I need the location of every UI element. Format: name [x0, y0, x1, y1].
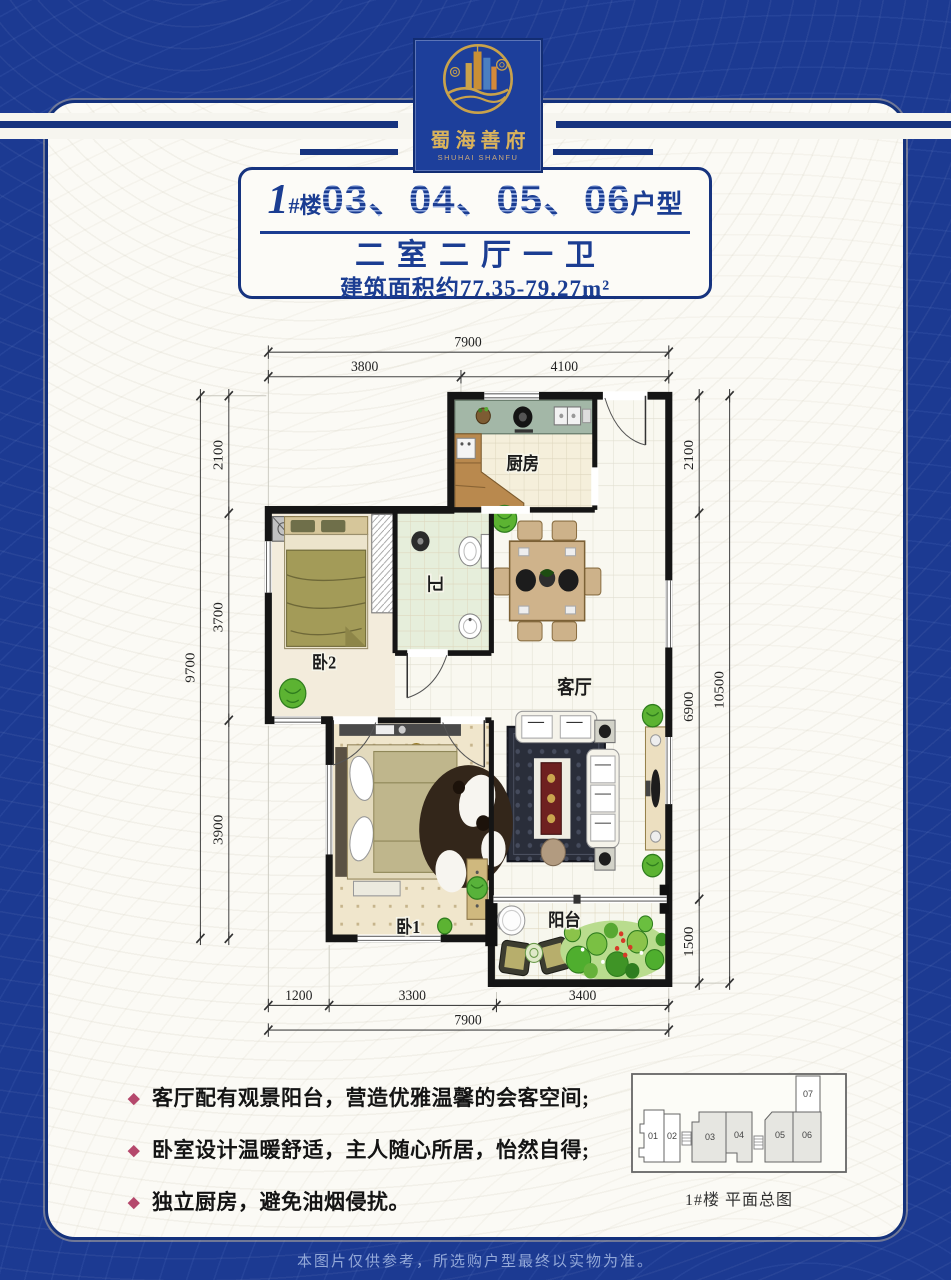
dim-bottom-b: 3300 — [399, 987, 426, 1004]
unit-label-03: 03 — [705, 1132, 715, 1142]
title-line1: 1#楼03、04、05、06户型 — [241, 178, 709, 231]
logo-name-en: SHUHAI SHANFU — [415, 153, 541, 162]
dim-left-c: 3900 — [211, 815, 226, 845]
unit-label-02: 02 — [667, 1131, 677, 1141]
unit-label-01: 01 — [648, 1131, 658, 1141]
dim-left-b: 3700 — [211, 602, 226, 632]
dim-right-c: 1500 — [682, 927, 697, 957]
logo-name-cn: 蜀海善府 — [415, 124, 541, 153]
layout-text: 二室二厅一卫 — [241, 238, 709, 274]
poster: { "colors": { "navy": "#16337f", "royal_… — [0, 0, 951, 1280]
feature-item: ◆卧室设计温暖舒适，主人随心所居，怡然自得; — [128, 1134, 648, 1164]
dim-top-total: 7900 — [454, 334, 481, 351]
floorplan: 7900 3800 4100 9700 2100 3700 3900 2100 … — [170, 332, 758, 1048]
building-overview: 01 02 03 04 05 06 07 1#楼 平面总图 — [630, 1072, 848, 1210]
unit-label-05: 05 — [775, 1130, 785, 1140]
dim-left-total: 9700 — [183, 653, 198, 683]
decor-line-left — [0, 121, 398, 128]
unit-numbers: 03、04、05、06 — [322, 178, 631, 222]
feature-text: 客厅配有观景阳台，营造优雅温馨的会客空间; — [152, 1086, 590, 1110]
room-label-bed1: 卧1 — [396, 917, 420, 937]
diamond-bullet-icon: ◆ — [128, 1143, 140, 1159]
logo-badge: 蜀海善府 SHUHAI SHANFU — [413, 38, 543, 173]
title-divider — [260, 231, 690, 234]
feature-item: ◆客厅配有观景阳台，营造优雅温馨的会客空间; — [128, 1082, 648, 1112]
title-box: 1#楼03、04、05、06户型 二室二厅一卫 建筑面积约77.35-79.27… — [238, 167, 712, 299]
feature-text: 卧室设计温暖舒适，主人随心所居，怡然自得; — [152, 1138, 590, 1162]
decor-line-right — [556, 121, 951, 128]
room-label-kitchen: 厨房 — [507, 453, 539, 474]
area-text: 建筑面积约77.35-79.27m² — [241, 274, 709, 304]
building-number: 1 — [268, 177, 289, 223]
diamond-bullet-icon: ◆ — [128, 1091, 140, 1107]
dim-right-total: 10500 — [712, 671, 727, 709]
dim-top-b: 4100 — [551, 359, 578, 376]
dim-bottom-c: 3400 — [569, 987, 596, 1004]
room-label-bed2: 卧2 — [312, 653, 336, 673]
unit-label-07: 07 — [803, 1089, 813, 1099]
decor-line2-right — [553, 149, 653, 155]
dim-bottom-total: 7900 — [454, 1012, 481, 1029]
type-suffix: 户型 — [630, 190, 682, 219]
room-label-living: 客厅 — [556, 676, 591, 698]
dim-bottom-a: 1200 — [285, 987, 312, 1004]
building-overview-diagram: 01 02 03 04 05 06 07 — [630, 1072, 848, 1176]
footer-disclaimer: 本图片仅供参考，所选购户型最终以实物为准。 — [0, 1250, 951, 1271]
unit-label-06: 06 — [802, 1130, 812, 1140]
decor-line2-left — [300, 149, 398, 155]
room-label-balcony: 阳台 — [548, 909, 580, 930]
logo-emblem-icon — [432, 40, 524, 118]
building-suffix: #楼 — [289, 193, 322, 218]
dim-right-b: 6900 — [682, 692, 697, 722]
dim-right-a: 2100 — [682, 440, 697, 470]
feature-item: ◆独立厨房，避免油烟侵扰。 — [128, 1186, 648, 1216]
dim-top-a: 3800 — [351, 359, 378, 376]
dim-left-a: 2100 — [211, 440, 226, 470]
unit-label-04: 04 — [734, 1130, 744, 1140]
overview-caption: 1#楼 平面总图 — [630, 1186, 848, 1210]
diamond-bullet-icon: ◆ — [128, 1195, 140, 1211]
room-label-bath: 卫 — [426, 575, 444, 593]
feature-text: 独立厨房，避免油烟侵扰。 — [152, 1190, 410, 1214]
feature-list: ◆客厅配有观景阳台，营造优雅温馨的会客空间; ◆卧室设计温暖舒适，主人随心所居，… — [128, 1082, 648, 1238]
